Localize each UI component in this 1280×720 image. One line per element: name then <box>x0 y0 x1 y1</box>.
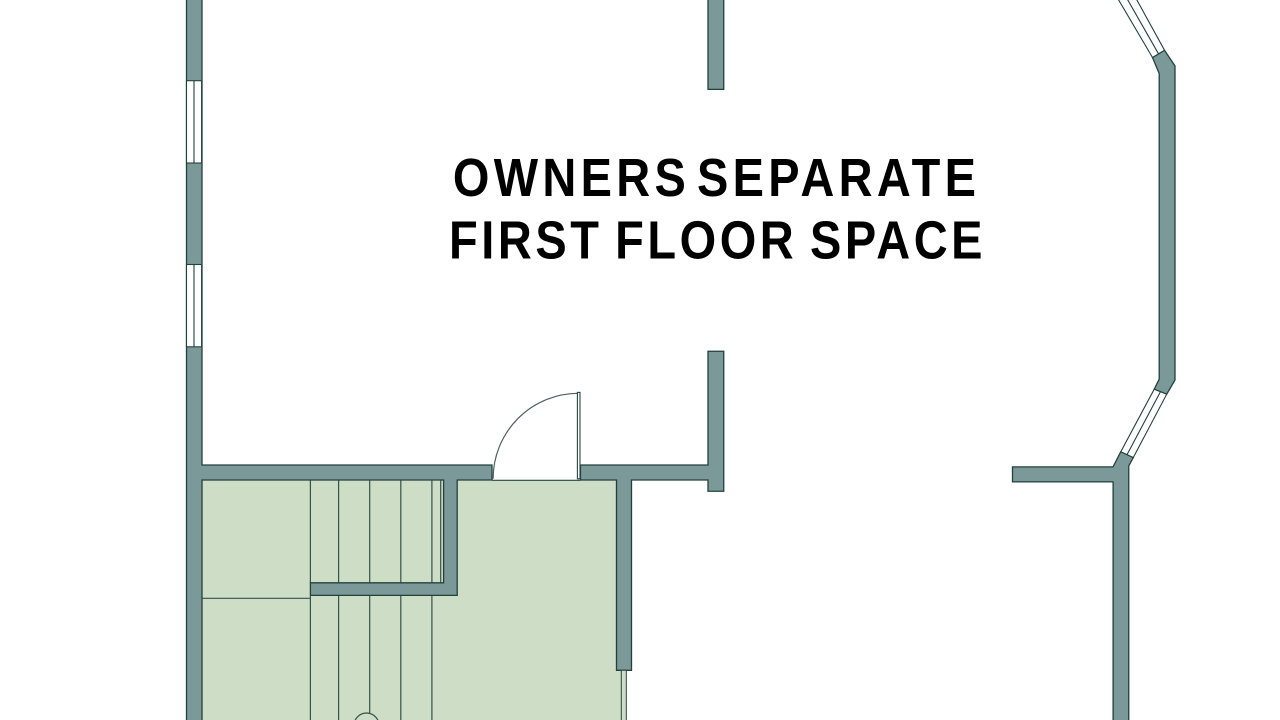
svg-text:OWNERS SEPARATE: OWNERS SEPARATE <box>453 147 980 208</box>
svg-text:FIRST FLOOR SPACE: FIRST FLOOR SPACE <box>449 209 986 270</box>
